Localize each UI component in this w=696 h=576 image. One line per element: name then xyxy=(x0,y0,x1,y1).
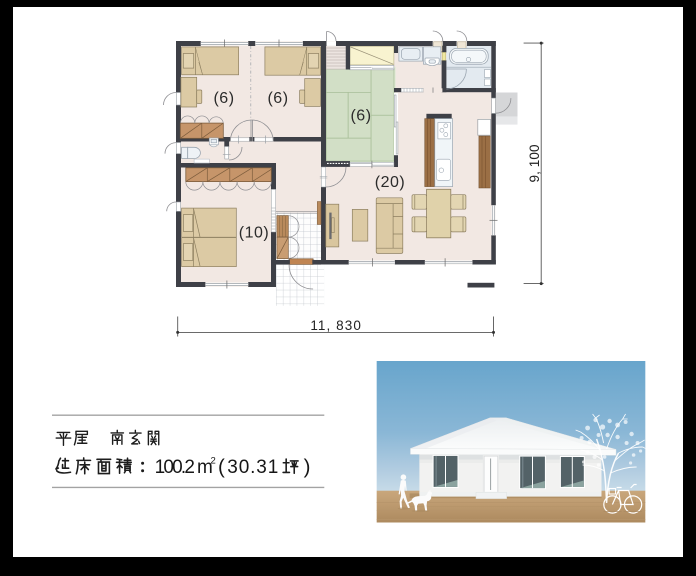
svg-text:30.31: 30.31 xyxy=(227,457,278,478)
svg-text:): ) xyxy=(304,456,311,479)
svg-text:11, 830: 11, 830 xyxy=(310,318,361,333)
svg-text:(6): (6) xyxy=(267,90,288,107)
svg-text:2: 2 xyxy=(211,456,216,467)
svg-text:(10): (10) xyxy=(239,225,269,242)
svg-text:(6): (6) xyxy=(213,90,234,107)
svg-text:(20): (20) xyxy=(375,174,405,191)
svg-text:(6): (6) xyxy=(350,108,371,125)
svg-text:9, 100: 9, 100 xyxy=(527,145,542,183)
svg-text:100.2: 100.2 xyxy=(155,457,195,478)
svg-text:(: ( xyxy=(218,456,225,479)
